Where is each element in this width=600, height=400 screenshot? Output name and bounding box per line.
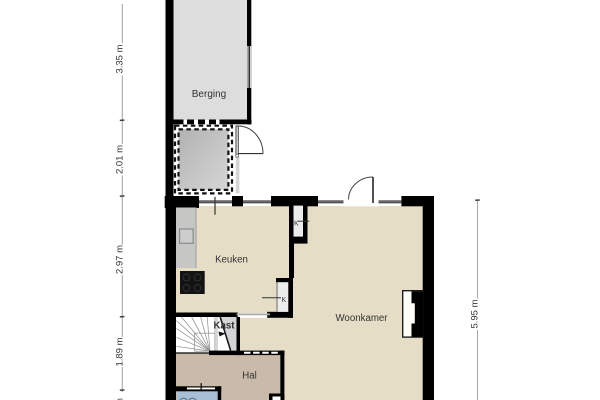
svg-text:2.97 m: 2.97 m xyxy=(114,245,125,274)
svg-text:Keuken: Keuken xyxy=(215,255,248,266)
svg-text:1.89 m: 1.89 m xyxy=(114,337,125,366)
svg-text:3.35 m: 3.35 m xyxy=(114,44,125,73)
svg-text:K: K xyxy=(294,221,299,228)
svg-text:5.95 m: 5.95 m xyxy=(470,299,481,328)
svg-text:Kast: Kast xyxy=(214,321,236,332)
svg-text:K: K xyxy=(282,297,287,304)
svg-text:2.01 m: 2.01 m xyxy=(114,145,125,174)
svg-text:Hal: Hal xyxy=(242,371,257,382)
svg-text:Berging: Berging xyxy=(192,89,226,100)
svg-text:Woonkamer: Woonkamer xyxy=(335,313,388,324)
